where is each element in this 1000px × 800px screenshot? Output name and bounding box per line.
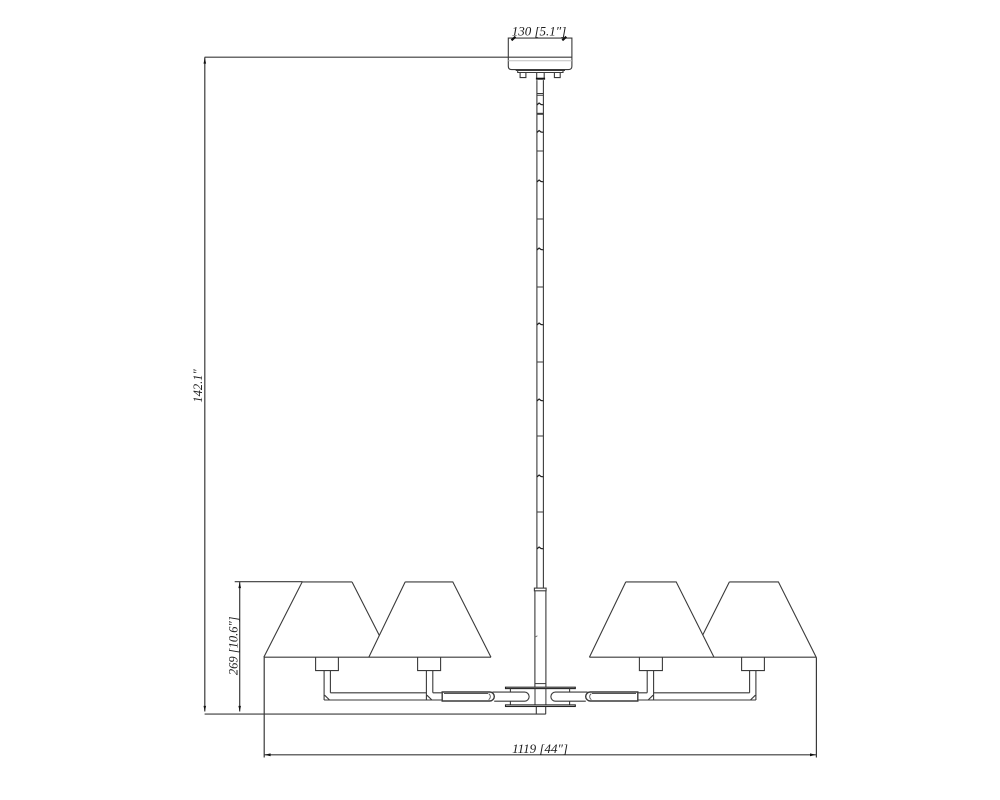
svg-text:1119 [44″]: 1119 [44″] [512, 741, 568, 756]
svg-text:130 [5.1″]: 130 [5.1″] [512, 23, 567, 38]
svg-text:269 [10.6″]: 269 [10.6″] [227, 616, 241, 675]
svg-text:142.1″: 142.1″ [191, 369, 205, 403]
